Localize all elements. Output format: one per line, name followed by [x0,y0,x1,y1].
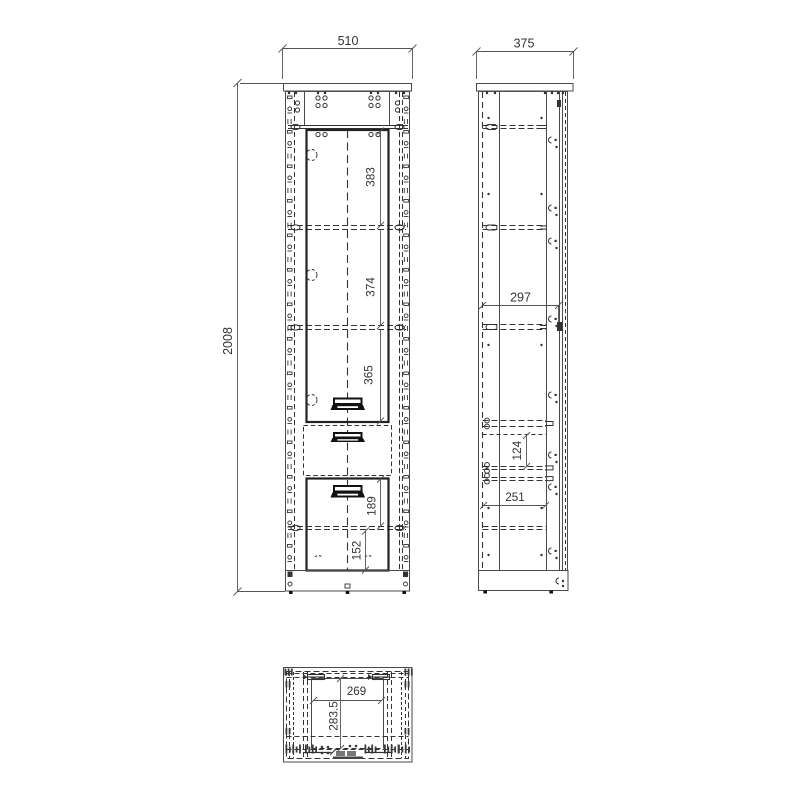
svg-text:383: 383 [364,167,378,187]
svg-text:510: 510 [338,34,359,48]
svg-text:152: 152 [350,541,364,561]
svg-text:297: 297 [510,291,531,305]
svg-text:124: 124 [510,440,524,460]
svg-text:283.5: 283.5 [327,701,341,731]
svg-text:365: 365 [362,365,376,385]
svg-text:375: 375 [514,37,535,51]
svg-text:269: 269 [347,686,366,698]
svg-text:2008: 2008 [221,327,235,355]
svg-text:251: 251 [505,492,524,504]
svg-text:189: 189 [365,496,379,516]
svg-text:374: 374 [364,277,378,297]
